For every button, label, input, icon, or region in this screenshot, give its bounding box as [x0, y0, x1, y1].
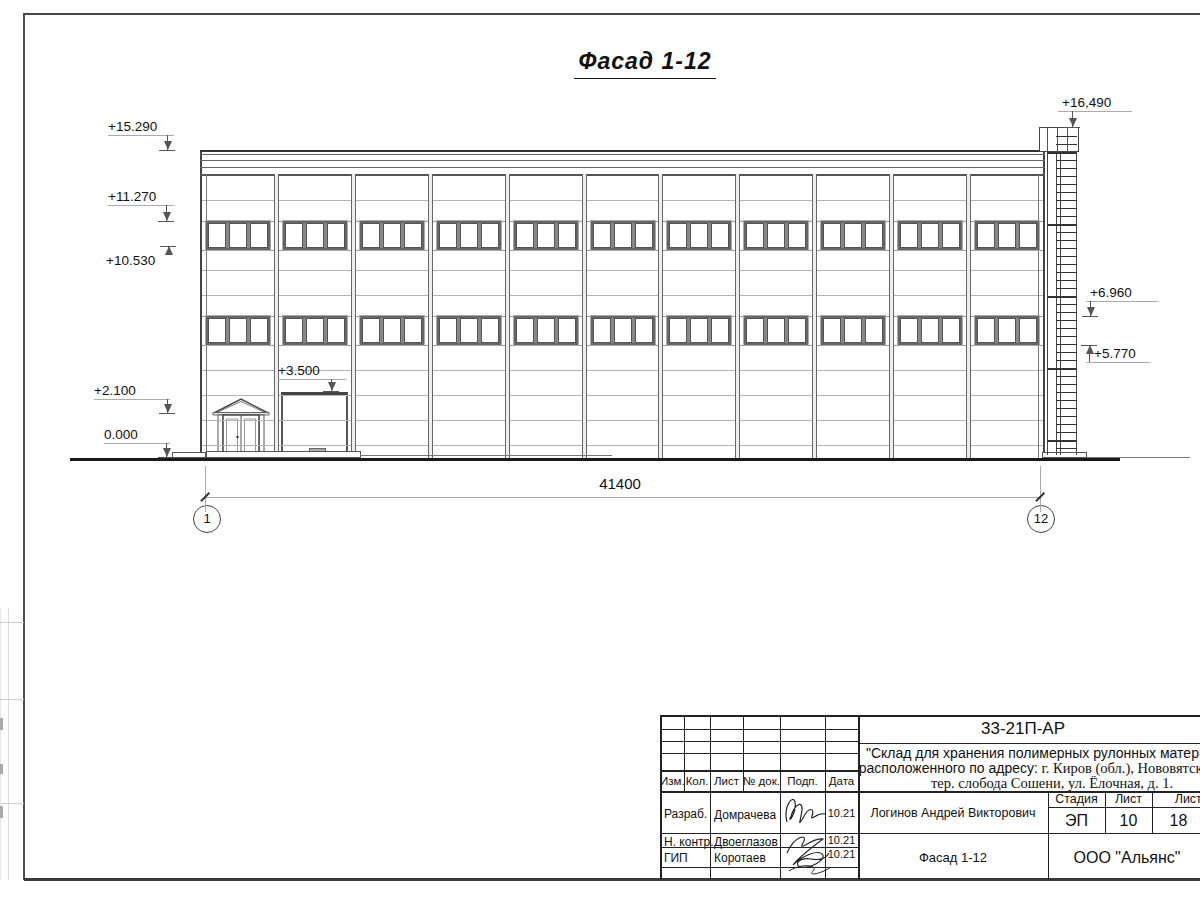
- elevation-mark-label: +2.100: [94, 383, 136, 398]
- title-block-hline: [660, 715, 1200, 717]
- sheet-name: Фасад 1-12: [858, 850, 1048, 865]
- sheet-label: Лист: [1105, 792, 1152, 806]
- elevation-tick: [158, 457, 174, 458]
- column-mullion: [428, 174, 433, 458]
- elevation-arrowhead-up: [1086, 345, 1094, 354]
- window-pane: [327, 318, 345, 343]
- ladder-rung: [1056, 384, 1077, 385]
- ladder-top-post: [1047, 127, 1048, 152]
- ribbon-window: [283, 221, 347, 250]
- margin-stamp-line: [8, 608, 9, 880]
- ladder-rung: [1056, 168, 1077, 169]
- window-pane: [865, 318, 883, 343]
- ladder-rail: [1047, 152, 1048, 455]
- window-pane: [823, 318, 841, 343]
- window-pane: [1019, 223, 1037, 248]
- margin-stamp-text-fragment: [0, 806, 3, 818]
- name-gip: Коротаев: [714, 851, 766, 865]
- window-pane: [921, 223, 939, 248]
- col-kol: Кол.: [684, 775, 710, 787]
- window-band-line: [202, 345, 1043, 346]
- ladder-rung: [1056, 344, 1077, 345]
- siding-line: [202, 445, 1043, 446]
- column-mullion: [812, 174, 817, 458]
- margin-stamp-line: [0, 699, 24, 700]
- window-pane: [516, 223, 534, 248]
- window-pane: [481, 223, 499, 248]
- elevation-leader-line: [1086, 362, 1150, 363]
- role-razrab: Разраб.: [664, 807, 707, 821]
- elevation-arrowhead-down: [164, 141, 172, 150]
- window-pane: [690, 223, 708, 248]
- column-mullion: [966, 174, 971, 458]
- ladder-rung: [1056, 184, 1077, 185]
- parapet-line: [200, 154, 1045, 155]
- ladder-rung: [1056, 360, 1077, 361]
- window-pane: [229, 318, 247, 343]
- window-pane: [767, 318, 785, 343]
- ladder-top-cage: [1039, 127, 1079, 152]
- ladder-rung: [1056, 136, 1077, 137]
- ladder-rung: [1056, 408, 1077, 409]
- title-block-hline: [660, 741, 858, 742]
- window-pane: [593, 318, 611, 343]
- window-pane: [977, 223, 995, 248]
- elevation-tick: [159, 413, 175, 414]
- ladder-rung: [1056, 208, 1077, 209]
- extension-line: [205, 466, 206, 512]
- elevation-arrowhead-down: [1087, 307, 1095, 316]
- window-pane: [460, 318, 478, 343]
- dimension-label: 41400: [560, 475, 680, 492]
- window-pane: [460, 223, 478, 248]
- ladder-rung: [1056, 192, 1077, 193]
- ribbon-window: [667, 221, 731, 250]
- window-pane: [746, 318, 764, 343]
- grid-axis-bubble-12: 12: [1027, 505, 1055, 533]
- siding-line: [202, 295, 1043, 296]
- ladder-rung: [1056, 280, 1077, 281]
- window-pane: [690, 318, 708, 343]
- window-pane: [481, 318, 499, 343]
- signature-gip: [779, 831, 835, 879]
- building-wall: [200, 150, 1045, 458]
- col-list: Лист: [710, 775, 743, 787]
- window-pane: [229, 223, 247, 248]
- title-block-vline: [710, 715, 711, 880]
- window-pane: [250, 223, 268, 248]
- column-mullion: [351, 174, 356, 458]
- window-pane: [1019, 318, 1037, 343]
- ribbon-window: [206, 221, 270, 250]
- window-pane: [865, 223, 883, 248]
- elevation-leader-line: [104, 443, 170, 444]
- stage-label: Стадия: [1048, 792, 1105, 806]
- title-block-vline: [1105, 791, 1106, 833]
- column-mullion: [889, 174, 894, 458]
- margin-stamp-text-fragment: [0, 764, 3, 774]
- window-pane: [362, 318, 380, 343]
- frame-bottom-border: [24, 878, 1200, 881]
- window-pane: [635, 318, 653, 343]
- ribbon-window: [514, 316, 578, 345]
- window-pane: [669, 318, 687, 343]
- column-mullion: [735, 174, 740, 458]
- window-pane: [998, 318, 1016, 343]
- drawing-sheet: { "drawing": { "view_title": "Фасад 1-12…: [0, 0, 1200, 900]
- project-addr-prefix: расположенного по адресу:: [859, 760, 1038, 776]
- ribbon-window: [898, 221, 962, 250]
- sheets-value: 18: [1152, 812, 1200, 830]
- ladder-rung: [1056, 392, 1077, 393]
- ladder-rung: [1056, 200, 1077, 201]
- ribbon-window: [283, 316, 347, 345]
- ladder-rung: [1056, 264, 1077, 265]
- window-pane: [942, 223, 960, 248]
- window-pane: [404, 318, 422, 343]
- ladder-rung: [1056, 336, 1077, 337]
- window-band-line: [202, 250, 1043, 251]
- margin-stamp-line: [0, 622, 24, 623]
- sheet-value: 10: [1105, 812, 1152, 830]
- ribbon-window: [975, 316, 1039, 345]
- elevation-mark-label: +16,490: [1062, 95, 1111, 110]
- ladder-rung: [1056, 160, 1077, 161]
- ladder-hoop: [1047, 224, 1077, 226]
- elevation-arrowhead-down: [163, 212, 171, 221]
- window-pane: [614, 223, 632, 248]
- apron: [206, 451, 361, 458]
- elevation-mark-label: +3.500: [278, 363, 320, 378]
- window-pane: [404, 223, 422, 248]
- ladder-rung: [1056, 320, 1077, 321]
- apron-line: [360, 455, 612, 456]
- role-gip: ГИП: [664, 851, 688, 865]
- ribbon-window: [360, 221, 424, 250]
- ladder-rung: [1056, 240, 1077, 241]
- ladder-rung: [1056, 448, 1077, 449]
- siding-line: [202, 370, 1043, 371]
- elevation-arrowhead-up: [165, 246, 173, 255]
- col-ndok: № док.: [743, 775, 780, 787]
- title-block-hline: [660, 833, 1200, 834]
- window-pane: [537, 223, 555, 248]
- ladder-rung: [1056, 432, 1077, 433]
- elevation-mark-label: +11.270: [108, 189, 156, 204]
- elevation-tick: [159, 150, 175, 151]
- elevation-tick: [1082, 316, 1098, 317]
- ladder-top-post: [1057, 127, 1058, 152]
- elevation-leader-line: [94, 399, 170, 400]
- ribbon-window: [514, 221, 578, 250]
- signature-razrab: [781, 792, 831, 834]
- ladder-hoop: [1047, 296, 1077, 298]
- elevation-leader-line: [108, 205, 174, 206]
- window-pane: [900, 223, 918, 248]
- siding-line: [202, 395, 1043, 396]
- ladder-rung: [1056, 288, 1077, 289]
- ribbon-window: [744, 316, 808, 345]
- column-mullion: [658, 174, 663, 458]
- title-block-hline: [1048, 807, 1200, 808]
- company-name: ООО "Альянс": [1048, 849, 1200, 867]
- window-pane: [711, 223, 729, 248]
- siding-line: [202, 420, 1043, 421]
- elevation-leader-line: [1058, 111, 1132, 112]
- ladder-rung: [1056, 248, 1077, 249]
- ladder-hoop: [1047, 368, 1077, 370]
- ladder-rung: [1056, 232, 1077, 233]
- col-data: Дата: [825, 775, 858, 787]
- window-pane: [285, 223, 303, 248]
- siding-line: [202, 200, 1043, 201]
- window-pane: [711, 318, 729, 343]
- window-pane: [669, 223, 687, 248]
- window-pane: [614, 318, 632, 343]
- siding-line: [202, 270, 1043, 271]
- parapet-base-line: [200, 174, 1045, 176]
- title-block-hline: [660, 770, 858, 772]
- elevation-leader-line: [1086, 301, 1158, 302]
- ladder-rung: [1056, 256, 1077, 257]
- extension-line: [1040, 466, 1041, 512]
- window-pane: [439, 223, 457, 248]
- title-block-hline: [858, 743, 1200, 744]
- ribbon-window: [744, 221, 808, 250]
- window-pane: [921, 318, 939, 343]
- window-pane: [383, 318, 401, 343]
- window-pane: [746, 223, 764, 248]
- ribbon-window: [975, 221, 1039, 250]
- ribbon-window: [360, 316, 424, 345]
- margin-stamp-line: [0, 803, 24, 804]
- ladder-rung: [1056, 400, 1077, 401]
- window-pane: [250, 318, 268, 343]
- window-pane: [593, 223, 611, 248]
- title-block-hline: [660, 791, 1200, 793]
- ladder-rung: [1056, 416, 1077, 417]
- sheets-label: Листов: [1152, 792, 1200, 806]
- window-pane: [558, 223, 576, 248]
- elevation-mark-label: +10.530: [106, 253, 155, 268]
- ladder-hoop: [1047, 152, 1077, 154]
- ribbon-window: [591, 221, 655, 250]
- name-razrab: Домрачева: [714, 808, 776, 822]
- title-block-vline: [858, 715, 860, 880]
- column-mullion: [505, 174, 510, 458]
- window-pane: [977, 318, 995, 343]
- window-pane: [942, 318, 960, 343]
- ribbon-window: [898, 316, 962, 345]
- title-block-hline: [660, 729, 858, 730]
- ground-line: [70, 458, 1120, 461]
- ribbon-window: [437, 316, 501, 345]
- window-pane: [767, 223, 785, 248]
- title-block-doc-code: 33-21П-АР: [858, 719, 1188, 739]
- ground-extension-line: [1086, 457, 1190, 458]
- ladder-rung: [1056, 312, 1077, 313]
- window-pane: [285, 318, 303, 343]
- elevation-mark-label: +6.960: [1090, 285, 1132, 300]
- window-pane: [558, 318, 576, 343]
- ribbon-window: [821, 316, 885, 345]
- view-title: Фасад 1-12: [574, 48, 716, 79]
- title-block-project-line1: "Склад для хранения полимерных рулонных …: [858, 745, 1200, 761]
- ribbon-window: [437, 221, 501, 250]
- elevation-arrowhead-down: [1069, 118, 1077, 127]
- window-pane: [844, 223, 862, 248]
- chief-name: Логинов Андрей Викторович: [858, 806, 1048, 820]
- elevation-leader-line: [278, 379, 346, 380]
- window-pane: [306, 223, 324, 248]
- title-block-hline: [660, 753, 858, 754]
- window-pane: [844, 318, 862, 343]
- ladder-hoop: [1047, 440, 1077, 442]
- ladder-rung: [1056, 216, 1077, 217]
- grid-axis-bubble-1: 1: [193, 505, 221, 533]
- title-block-vline: [1152, 791, 1153, 833]
- ladder-rung: [1056, 328, 1077, 329]
- window-pane: [788, 318, 806, 343]
- elevation-mark-label: +15.290: [108, 119, 157, 134]
- window-pane: [208, 223, 226, 248]
- window-pane: [327, 223, 345, 248]
- ladder-rung: [1056, 376, 1077, 377]
- ladder-rung: [1056, 424, 1077, 425]
- elevation-tick: [158, 221, 174, 222]
- ladder-rung: [1056, 144, 1077, 145]
- frame-left-border: [23, 13, 25, 880]
- elevation-arrowhead-down: [163, 448, 171, 457]
- elevation-leader-line: [108, 135, 174, 136]
- col-izm: Изм.: [660, 775, 684, 787]
- title-block-vline: [660, 715, 662, 880]
- window-pane: [788, 223, 806, 248]
- project-addr-rest: г. Киров (обл.), Нововятский р-н,: [1038, 760, 1200, 776]
- ladder-rung: [1056, 176, 1077, 177]
- elevation-mark-label: +5.770: [1094, 346, 1136, 361]
- elevation-tick: [1064, 127, 1080, 128]
- ladder-top-post: [1067, 127, 1068, 152]
- margin-stamp-line: [0, 608, 1, 880]
- ladder-rung: [1056, 352, 1077, 353]
- col-podp: Подп.: [780, 775, 825, 787]
- margin-stamp-text-fragment: [0, 718, 3, 730]
- window-pane: [208, 318, 226, 343]
- ribbon-window: [591, 316, 655, 345]
- ladder-rung: [1056, 304, 1077, 305]
- elevation-tick: [323, 391, 339, 392]
- ribbon-window: [821, 221, 885, 250]
- ribbon-window: [206, 316, 270, 345]
- window-pane: [362, 223, 380, 248]
- window-pane: [537, 318, 555, 343]
- column-mullion: [582, 174, 587, 458]
- dimension-line: [205, 497, 1040, 498]
- window-pane: [900, 318, 918, 343]
- title-block-project-line3: тер. слобода Сошени, ул. Ёлочная, д. 1.: [858, 775, 1200, 792]
- frame-top-border: [24, 13, 1200, 15]
- parapet-line: [200, 160, 1045, 161]
- window-pane: [516, 318, 534, 343]
- ribbon-window: [667, 316, 731, 345]
- window-pane: [635, 223, 653, 248]
- window-pane: [383, 223, 401, 248]
- window-pane: [306, 318, 324, 343]
- column-mullion: [274, 174, 279, 458]
- elevation-arrowhead-down: [164, 404, 172, 413]
- window-pane: [823, 223, 841, 248]
- window-pane: [998, 223, 1016, 248]
- elevation-arrowhead-down: [328, 382, 336, 391]
- ladder-rung: [1056, 272, 1077, 273]
- title-block-vline: [1048, 791, 1049, 880]
- window-pane: [439, 318, 457, 343]
- elevation-mark-label: 0.000: [104, 427, 138, 442]
- stage-value: ЭП: [1048, 812, 1105, 830]
- parapet-line: [200, 167, 1045, 168]
